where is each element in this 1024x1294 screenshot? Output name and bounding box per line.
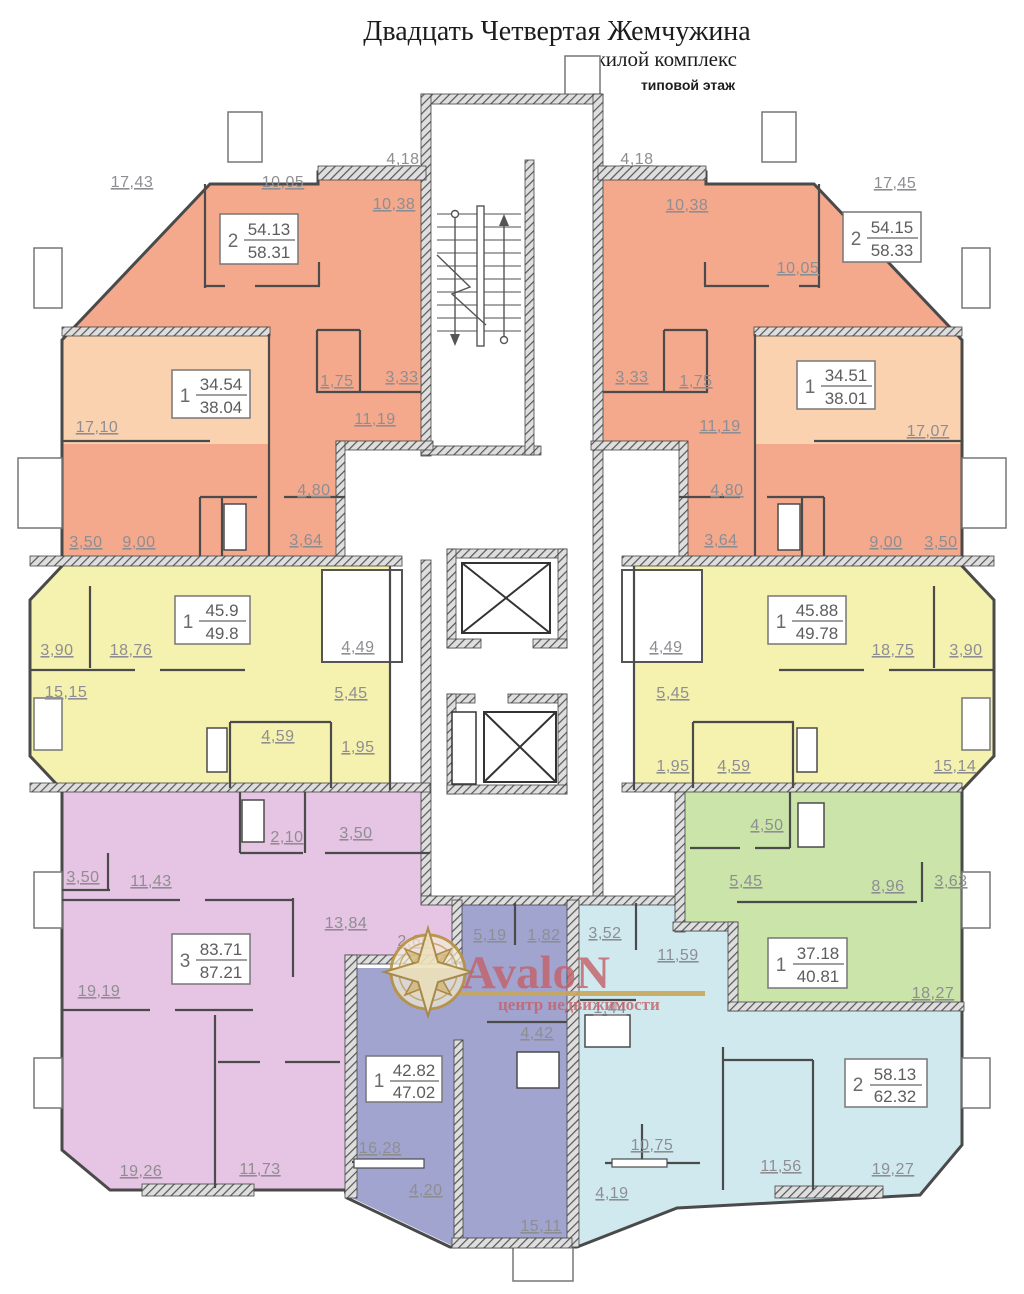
room-dim-label: 3,50 — [924, 534, 957, 551]
elevator-icons — [452, 563, 556, 784]
room-dim-label: 15,11 — [520, 1218, 561, 1235]
room-dim-label: 18,75 — [872, 642, 915, 659]
room-dim-label: 10,05 — [262, 174, 305, 191]
room-dim-label: 3,50 — [69, 534, 102, 551]
room-dim-label: 17,43 — [111, 174, 154, 191]
room-dim-label: 10,38 — [373, 196, 416, 213]
room-dim-label: 3,90 — [949, 642, 982, 659]
room-dim-label: 5,45 — [656, 685, 689, 702]
room-dim-label: 4,18 — [386, 151, 419, 168]
room-dim-label: 4,80 — [297, 482, 330, 499]
room-dim-label: 11,73 — [239, 1161, 280, 1178]
svg-text:2: 2 — [228, 231, 239, 252]
svg-text:1: 1 — [374, 1071, 385, 1092]
room-dim-label: 17,07 — [907, 423, 950, 440]
svg-text:62.32: 62.32 — [874, 1087, 917, 1106]
room-dim-label: 17,45 — [874, 175, 917, 192]
room-dim-label: 1,75 — [320, 373, 353, 390]
svg-text:37.18: 37.18 — [797, 944, 840, 963]
room-dim-label: 4,50 — [750, 817, 783, 834]
room-dim-label: 3,64 — [289, 532, 322, 549]
room-dim-label: 4,49 — [649, 639, 682, 656]
apartment-info-box: 2 54.15 58.33 — [843, 212, 921, 262]
complex-title: Двадцать Четвертая Жемчужина — [363, 16, 751, 47]
logo-tagline-text: центр недвижимости — [498, 995, 660, 1014]
svg-text:1: 1 — [776, 955, 787, 976]
svg-text:1: 1 — [183, 612, 194, 633]
svg-text:40.81: 40.81 — [797, 967, 840, 986]
room-dim-label: 11,59 — [657, 947, 698, 964]
room-dim-label: 5,19 — [473, 927, 506, 944]
apartment-info-box: 1 45.9 49.8 — [175, 596, 250, 644]
logo-brand-text: AvaloN — [462, 947, 610, 999]
room-dim-label: 1,95 — [656, 758, 689, 775]
room-dim-label: 4,59 — [261, 728, 294, 745]
plan-header: Двадцать Четвертая Жемчужина жилой компл… — [363, 16, 751, 93]
room-dim-label: 3,64 — [704, 532, 737, 549]
svg-text:45.88: 45.88 — [796, 601, 839, 620]
svg-text:87.21: 87.21 — [200, 963, 243, 982]
room-dim-label: 11,19 — [354, 411, 395, 428]
svg-text:49.78: 49.78 — [796, 624, 839, 643]
room-dim-label: 4,49 — [341, 639, 374, 656]
apartment-info-box: 2 58.13 62.32 — [845, 1059, 927, 1107]
room-dim-label: 13,84 — [325, 915, 368, 932]
room-dim-label: 3,33 — [385, 369, 418, 386]
svg-text:58.13: 58.13 — [874, 1065, 917, 1084]
svg-text:2: 2 — [851, 229, 862, 250]
room-dim-label: 19,27 — [872, 1161, 915, 1178]
svg-text:2: 2 — [853, 1075, 864, 1096]
svg-text:42.82: 42.82 — [393, 1061, 436, 1080]
complex-subtitle: жилой комплекс — [590, 47, 737, 71]
room-dim-label: 17,10 — [76, 419, 119, 436]
room-dim-label: 8,96 — [871, 878, 904, 895]
svg-text:58.33: 58.33 — [871, 241, 914, 260]
svg-text:1: 1 — [776, 612, 787, 633]
elevator-icon — [462, 563, 550, 633]
room-dim-label: 15,15 — [45, 684, 88, 701]
svg-text:38.01: 38.01 — [825, 389, 868, 408]
room-dim-label: 1,75 — [679, 373, 712, 390]
room-dim-label: 3,50 — [66, 869, 99, 886]
apartment-info-box: 1 34.54 38.04 — [172, 370, 250, 418]
room-dim-label: 11,56 — [760, 1158, 801, 1175]
apartment-info-box: 1 45.88 49.78 — [768, 596, 846, 644]
room-dim-label: 5,45 — [334, 685, 367, 702]
svg-text:38.04: 38.04 — [200, 398, 243, 417]
room-dim-label: 1,95 — [341, 739, 374, 756]
floor-plan-page: Двадцать Четвертая Жемчужина жилой компл… — [0, 0, 1024, 1294]
room-dim-label: 3,63 — [934, 873, 967, 890]
room-dim-label: 11,19 — [699, 418, 740, 435]
room-dim-label: 4,42 — [520, 1025, 553, 1042]
svg-text:45.9: 45.9 — [205, 601, 238, 620]
room-dim-label: 10,05 — [777, 260, 820, 277]
room-dim-label: 19,26 — [120, 1163, 163, 1180]
room-dim-label: 18,76 — [110, 642, 153, 659]
room-dim-label: 4,19 — [595, 1185, 628, 1202]
svg-text:49.8: 49.8 — [205, 624, 238, 643]
staircase — [437, 206, 521, 346]
room-dim-label: 3,90 — [40, 642, 73, 659]
svg-text:54.13: 54.13 — [248, 220, 291, 239]
room-dim-label: 4,18 — [620, 151, 653, 168]
svg-text:58.31: 58.31 — [248, 243, 291, 262]
room-dim-label: 3,33 — [615, 369, 648, 386]
apartment-info-box: 1 37.18 40.81 — [768, 938, 847, 988]
apartment-info-box: 3 83.71 87.21 — [172, 934, 250, 984]
room-dim-label: 4,80 — [710, 482, 743, 499]
apartment-info-box: 1 34.51 38.01 — [797, 361, 875, 409]
svg-text:34.51: 34.51 — [825, 366, 868, 385]
svg-text:1: 1 — [180, 386, 191, 407]
room-dim-label: 3,52 — [588, 925, 621, 942]
floor-plan-drawing: Двадцать Четвертая Жемчужина жилой компл… — [0, 0, 1024, 1294]
room-dim-label: 18,27 — [912, 985, 955, 1002]
room-dim-label: 10,75 — [631, 1137, 674, 1154]
room-dim-label: 5,45 — [729, 873, 762, 890]
room-dim-label: 16,28 — [359, 1140, 402, 1157]
room-dim-label: 11,43 — [130, 873, 171, 890]
apartment-info-box: 2 54.13 58.31 — [220, 214, 298, 264]
room-dim-label: 4,20 — [409, 1182, 442, 1199]
elevator-icon — [452, 712, 556, 784]
svg-text:34.54: 34.54 — [200, 375, 243, 394]
svg-text:54.15: 54.15 — [871, 218, 914, 237]
room-dim-label: 19,19 — [78, 983, 121, 1000]
apartment-info-box: 1 42.82 47.02 — [366, 1056, 442, 1102]
room-dim-label: 2,10 — [270, 829, 303, 846]
svg-text:47.02: 47.02 — [393, 1083, 436, 1102]
room-dim-label: 9,00 — [869, 534, 902, 551]
svg-text:83.71: 83.71 — [200, 940, 243, 959]
room-dim-label: 15,14 — [934, 758, 977, 775]
room-dim-label: 10,38 — [666, 197, 709, 214]
floor-type-label: типовой этаж — [641, 77, 736, 93]
svg-text:1: 1 — [805, 377, 816, 398]
room-dim-label: 4,59 — [717, 758, 750, 775]
room-dim-label: 9,00 — [122, 534, 155, 551]
svg-text:3: 3 — [180, 951, 191, 972]
room-dim-label: 1,82 — [527, 927, 560, 944]
room-dim-label: 3,50 — [339, 825, 372, 842]
